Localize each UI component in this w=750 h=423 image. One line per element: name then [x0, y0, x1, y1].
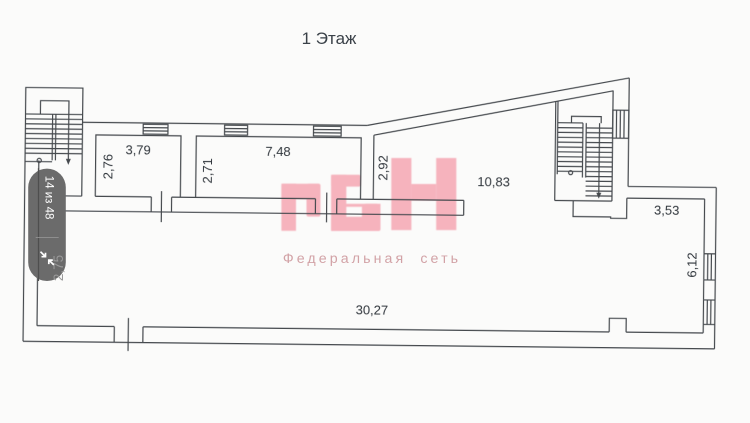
svg-text:7,48: 7,48: [265, 144, 290, 159]
svg-text:Федеральная сеть: Федеральная сеть: [283, 251, 461, 267]
svg-text:2,71: 2,71: [200, 158, 215, 183]
svg-text:30,27: 30,27: [356, 302, 389, 317]
svg-text:2,76: 2,76: [100, 154, 115, 179]
svg-text:6,12: 6,12: [684, 252, 699, 277]
svg-text:2,92: 2,92: [375, 155, 390, 180]
svg-text:10,83: 10,83: [477, 174, 510, 189]
svg-text:3,53: 3,53: [654, 202, 679, 217]
svg-text:2,75: 2,75: [51, 255, 66, 281]
svg-text:1 Этаж: 1 Этаж: [302, 29, 357, 48]
svg-text:3,79: 3,79: [125, 142, 150, 157]
svg-text:14 из 48: 14 из 48: [42, 176, 54, 220]
